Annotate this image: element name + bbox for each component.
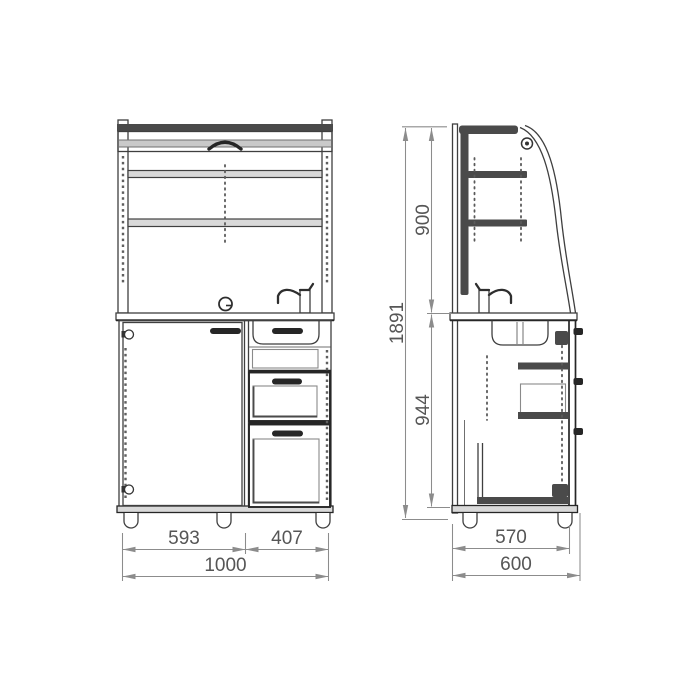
faucet-side-icon bbox=[476, 284, 511, 313]
front-worktop bbox=[116, 313, 334, 320]
vertical-dimensions: 1891 900 944 bbox=[387, 127, 453, 520]
dim-label-upper-height: 900 bbox=[413, 204, 434, 236]
side-worktop bbox=[450, 313, 577, 320]
curved-shutter-track-inner bbox=[520, 128, 571, 314]
dim-label-drawers-width: 407 bbox=[271, 528, 303, 549]
side-handle-1 bbox=[574, 328, 584, 335]
side-bottom-rail bbox=[452, 506, 578, 513]
drawer-2-bottom-bar bbox=[518, 412, 568, 419]
cabinet-door bbox=[123, 323, 242, 506]
drawer-3-front bbox=[249, 425, 330, 508]
side-top-cap bbox=[459, 126, 518, 135]
drawer-2-box-section bbox=[521, 384, 566, 413]
side-handle-2 bbox=[574, 378, 584, 385]
side-handle-3 bbox=[574, 428, 584, 435]
dim-label-total-width: 1000 bbox=[204, 555, 246, 576]
shutter-roller-icon bbox=[522, 138, 533, 149]
side-lower-cabinet bbox=[452, 321, 583, 529]
side-view bbox=[450, 124, 583, 528]
outlet-hole bbox=[219, 298, 232, 311]
drawer-1-handle bbox=[272, 328, 303, 334]
drawer-3-handle bbox=[272, 431, 303, 437]
front-width-dimensions: 593 407 1000 bbox=[123, 528, 329, 581]
side-shelf-lower bbox=[468, 220, 527, 227]
door-handle bbox=[210, 328, 241, 334]
dim-label-total-height: 1891 bbox=[387, 302, 408, 344]
curved-shutter-track-outer bbox=[525, 126, 576, 314]
drawer-1-sink-front bbox=[249, 321, 331, 369]
sink-basin-section bbox=[492, 321, 548, 346]
dim-label-body-depth: 570 bbox=[495, 527, 527, 548]
drawer-slide-bracket-top bbox=[555, 331, 568, 345]
side-foot-back bbox=[463, 513, 477, 528]
hutch-top-cap bbox=[117, 124, 333, 132]
inner-shelf-bar bbox=[518, 363, 568, 370]
dim-label-total-depth: 600 bbox=[500, 554, 532, 575]
drawer-slide-bracket-bottom bbox=[552, 484, 568, 497]
front-foot-left bbox=[124, 513, 138, 528]
dim-label-door-width: 593 bbox=[168, 528, 200, 549]
front-upper-hutch bbox=[117, 120, 333, 313]
front-foot-middle bbox=[217, 513, 231, 528]
side-foot-front bbox=[558, 513, 572, 528]
side-shelf-upper bbox=[468, 171, 527, 178]
faucet-front-icon bbox=[278, 284, 313, 313]
side-panel-section bbox=[461, 127, 469, 295]
drawer-2-front bbox=[249, 373, 330, 422]
drawer-2-handle bbox=[272, 379, 302, 385]
large-drawer-bottom bbox=[477, 497, 569, 504]
front-lower-cabinet bbox=[117, 321, 333, 529]
technical-drawing-canvas: 1891 900 944 593 407 1000 570 600 bbox=[0, 0, 700, 700]
dim-label-lower-height: 944 bbox=[413, 394, 434, 426]
front-view bbox=[116, 120, 334, 528]
cabinet-technical-drawing: 1891 900 944 593 407 1000 570 600 bbox=[0, 0, 700, 700]
front-foot-right bbox=[316, 513, 330, 528]
